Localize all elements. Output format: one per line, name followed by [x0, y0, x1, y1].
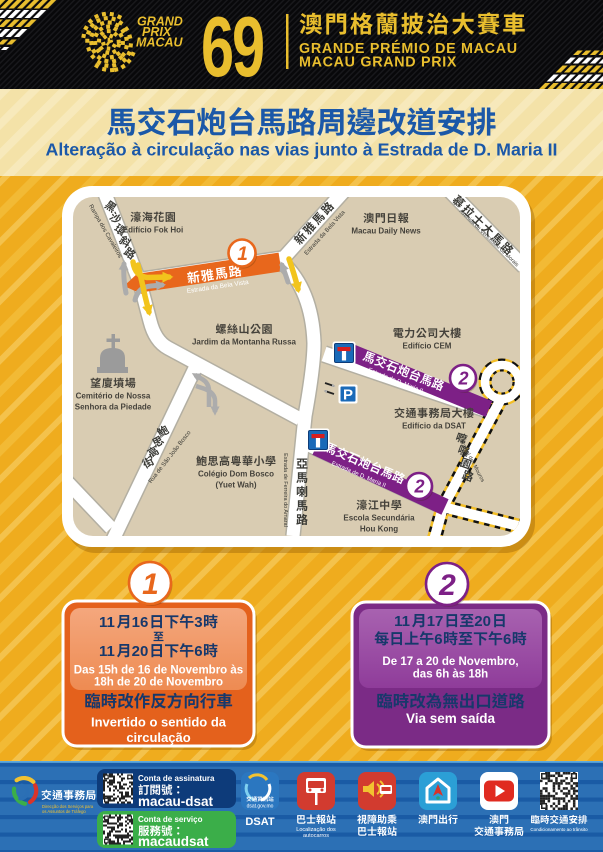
svg-text:Alteração à circulação nas via: Alteração à circulação nas vias junto à …: [46, 140, 558, 160]
svg-text:circulação: circulação: [126, 730, 190, 745]
svg-text:3: 3: [194, 614, 202, 631]
svg-text:macau-dsat: macau-dsat: [138, 794, 214, 809]
svg-text:Colégio Dom Bosco: Colégio Dom Bosco: [198, 470, 274, 479]
svg-text:Edifício CEM: Edifício CEM: [403, 342, 452, 351]
svg-text:Conta de assinatura: Conta de assinatura: [138, 774, 215, 783]
svg-text:Das 15h de 16 de Novembro às: Das 15h de 16 de Novembro às: [74, 665, 243, 677]
svg-text:De 17 a 20 de Novembro,: De 17 a 20 de Novembro,: [382, 656, 518, 668]
svg-text:16: 16: [132, 614, 149, 631]
svg-text:1: 1: [237, 244, 248, 265]
svg-text:20: 20: [132, 643, 149, 660]
svg-text:Escola Secundária: Escola Secundária: [343, 514, 415, 523]
svg-text:os Assuntos de Tráfego: os Assuntos de Tráfego: [42, 809, 86, 814]
svg-text:Edifício da DSAT: Edifício da DSAT: [402, 422, 466, 431]
svg-text:das 6h às 18h: das 6h às 18h: [413, 669, 488, 681]
svg-text:6: 6: [434, 631, 442, 648]
svg-text:11: 11: [394, 613, 410, 630]
svg-text:Cemitério de Nossa: Cemitério de Nossa: [76, 392, 151, 401]
svg-text:Edifício Fok Hoi: Edifício Fok Hoi: [123, 226, 183, 235]
svg-text:Conta de serviço: Conta de serviço: [138, 815, 203, 824]
svg-text:18h de 20 de Novembro: 18h de 20 de Novembro: [94, 677, 223, 689]
svg-text:Hou Kong: Hou Kong: [360, 525, 398, 534]
svg-text:Macau Daily News: Macau Daily News: [351, 227, 421, 236]
svg-text:1: 1: [142, 568, 159, 601]
svg-text:Via sem saída: Via sem saída: [406, 711, 496, 726]
svg-text:2: 2: [438, 569, 456, 602]
svg-text:2: 2: [413, 477, 424, 497]
svg-text:2: 2: [457, 369, 468, 389]
svg-text:Condicionamento ao trânsito: Condicionamento ao trânsito: [530, 827, 588, 832]
svg-text:macaudsat: macaudsat: [138, 834, 209, 849]
svg-text:69: 69: [201, 0, 264, 95]
svg-text:6: 6: [503, 631, 511, 648]
svg-text:DSAT: DSAT: [245, 816, 274, 828]
svg-text:(Yuet Wah): (Yuet Wah): [215, 481, 256, 490]
svg-text:P: P: [343, 387, 353, 404]
svg-text:20: 20: [474, 613, 491, 630]
svg-text:11: 11: [99, 614, 115, 631]
svg-text:Jardim da Montanha Russa: Jardim da Montanha Russa: [192, 338, 297, 347]
svg-text:6: 6: [194, 643, 202, 660]
svg-text:Senhora da Piedade: Senhora da Piedade: [75, 403, 152, 412]
svg-text:11: 11: [99, 643, 115, 660]
svg-text:Invertido o sentido da: Invertido o sentido da: [91, 715, 227, 730]
svg-text:autocarros: autocarros: [303, 833, 329, 839]
svg-text:Estrada de Ferreira do Amaral: Estrada de Ferreira do Amaral: [282, 453, 288, 527]
svg-text:MACAU: MACAU: [136, 36, 183, 50]
svg-text:dsat.gov.mo: dsat.gov.mo: [247, 804, 274, 810]
svg-text:MACAU GRAND PRIX: MACAU GRAND PRIX: [299, 55, 457, 71]
svg-text:17: 17: [427, 613, 444, 630]
